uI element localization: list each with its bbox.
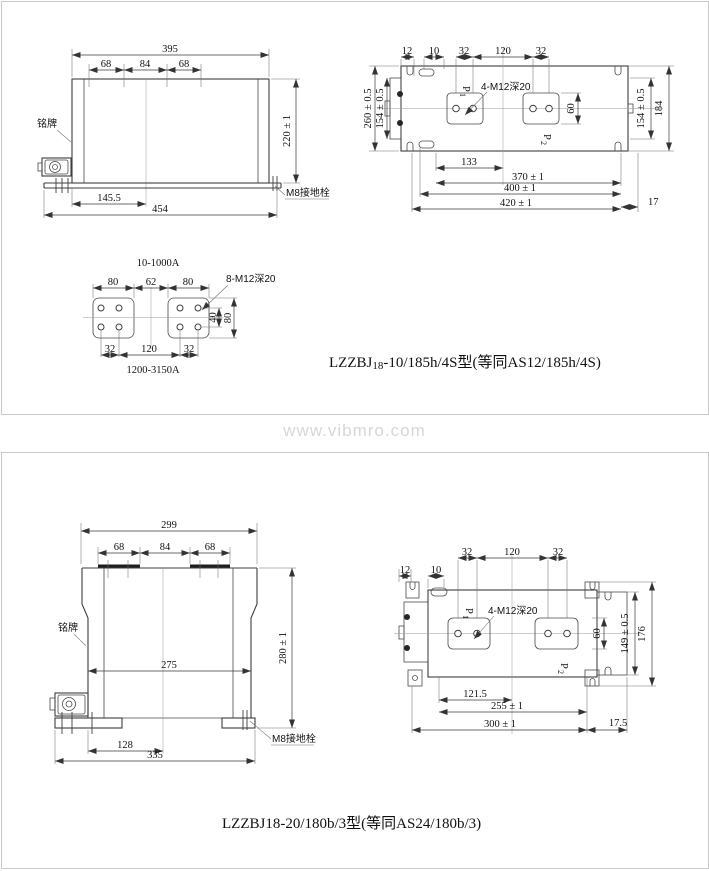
- dim-80r: 80: [223, 313, 234, 324]
- dim-133: 133: [461, 157, 477, 168]
- dim-454: 454: [152, 204, 169, 215]
- dim-60: 60: [592, 628, 603, 639]
- dim-68a: 68: [101, 59, 112, 70]
- dim-149: 149 ± 0.5: [620, 614, 631, 654]
- svg-text:P: P: [541, 134, 552, 140]
- dim-80b: 80: [183, 277, 194, 288]
- title-subscript: 18: [372, 360, 383, 372]
- nameplate-label: 铭牌: [37, 117, 57, 130]
- terminal-detail-drawing: 10-1000A 1200-3150A 8-M12深20 80: [61, 249, 311, 381]
- body-outline: [44, 64, 281, 207]
- title-rest: -20/180b/3型(等同AS24/180b/3): [280, 816, 481, 832]
- drawing-panel-top: 395 68 84 68 220 ± 1 145.5 454 铭牌: [1, 1, 709, 415]
- svg-text:P: P: [463, 608, 474, 614]
- nameplate-label: 铭牌: [58, 621, 78, 634]
- dim-32a: 32: [462, 547, 473, 558]
- p1-label: P 1: [458, 86, 471, 97]
- title-prefix: LZZBJ: [329, 355, 372, 371]
- dim-280: 280 ± 1: [278, 632, 289, 664]
- ground-bolt-label: M8接地栓: [286, 186, 330, 199]
- dim-12: 12: [402, 46, 413, 57]
- holes-label: 4-M12深20: [488, 605, 538, 617]
- dim-10: 10: [431, 565, 442, 576]
- dim-121: 121.5: [463, 689, 487, 700]
- dim-400: 400 ± 1: [504, 183, 536, 194]
- primary-terminal: [38, 158, 71, 176]
- dimensions: 12 10 32 120 32 260 ± 0.5 154 ± 0.5 154 …: [363, 46, 674, 212]
- dim-10: 10: [429, 46, 440, 57]
- holes-label: 8-M12深20: [226, 273, 276, 285]
- current-range-top: 10-1000A: [137, 258, 180, 269]
- p2-label: P 2: [556, 663, 569, 674]
- dim-17: 17: [648, 197, 659, 208]
- pads-outline: [83, 287, 223, 349]
- dim-62: 62: [146, 277, 157, 288]
- dim-300: 300 ± 1: [484, 719, 516, 730]
- dim-260: 260 ± 0.5: [363, 89, 374, 129]
- svg-text:1: 1: [461, 615, 470, 619]
- dim-68b: 68: [179, 59, 190, 70]
- labels: 10-1000A 1200-3150A 8-M12深20: [126, 258, 275, 376]
- dim-395: 395: [162, 44, 178, 55]
- dim-255: 255 ± 1: [491, 701, 523, 712]
- title-prefix: LZZBJ18: [222, 816, 280, 832]
- dim-370: 370 ± 1: [512, 172, 544, 183]
- dim-32b: 32: [536, 46, 547, 57]
- title-rest: -10/185h/4S型(等同AS12/185h/4S): [383, 355, 601, 371]
- p1-label: P 1: [461, 608, 474, 619]
- dimensions: 80 62 80 40 80 32 120 32: [93, 277, 237, 357]
- dim-154r: 154 ± 0.5: [636, 89, 647, 129]
- dim-120: 120: [495, 46, 511, 57]
- dimensions: 32 120 32 12 10 60 149 ± 0.5 176 121.: [399, 547, 656, 733]
- drawing-sheet: 395 68 84 68 220 ± 1 145.5 454 铭牌: [0, 0, 709, 871]
- dim-68a: 68: [114, 542, 125, 553]
- dimensions: 299 68 84 68 280 ± 1 275 128 335: [55, 520, 296, 764]
- dim-17-5: 17.5: [609, 718, 627, 729]
- dim-32a: 32: [459, 46, 470, 57]
- holes-label: 4-M12深20: [481, 81, 531, 93]
- drawing-title-1: LZZBJ18-10/185h/4S型(等同AS12/185h/4S): [329, 351, 601, 372]
- dim-32a: 32: [105, 344, 116, 355]
- dim-68b: 68: [205, 542, 216, 553]
- body-outline: [55, 560, 257, 754]
- dim-275: 275: [161, 660, 177, 671]
- svg-text:2: 2: [539, 141, 548, 145]
- current-range-bottom: 1200-3150A: [126, 365, 179, 376]
- dim-154l: 154 ± 0.5: [375, 89, 386, 129]
- svg-text:P: P: [460, 86, 471, 92]
- drawing-title-2: LZZBJ18-20/180b/3型(等同AS24/180b/3): [222, 812, 481, 833]
- front-view-drawing-1: 395 68 84 68 220 ± 1 145.5 454 铭牌: [29, 37, 331, 222]
- dim-120: 120: [504, 547, 520, 558]
- dim-120: 120: [141, 344, 157, 355]
- dim-128: 128: [117, 740, 133, 751]
- dim-60: 60: [566, 103, 577, 114]
- dim-80a: 80: [108, 277, 119, 288]
- dim-420: 420 ± 1: [500, 198, 532, 209]
- dim-220: 220 ± 1: [282, 115, 293, 147]
- dimensions: 395 68 84 68 220 ± 1 145.5 454: [44, 44, 300, 218]
- drawing-panel-bottom: 299 68 84 68 280 ± 1 275 128 335: [1, 452, 709, 869]
- primary-terminal: [50, 693, 88, 716]
- dim-40: 40: [208, 312, 219, 323]
- watermark-text: www.vibmro.com: [0, 421, 709, 441]
- dim-176: 176: [637, 626, 648, 642]
- dim-32b: 32: [553, 547, 564, 558]
- top-view-drawing-1: 12 10 32 120 32 260 ± 0.5 154 ± 0.5 154 …: [363, 33, 703, 228]
- front-view-drawing-2: 299 68 84 68 280 ± 1 275 128 335: [40, 506, 330, 768]
- svg-text:1: 1: [458, 93, 467, 97]
- svg-text:P: P: [558, 663, 569, 669]
- dim-32b: 32: [184, 344, 195, 355]
- p2-label: P 2: [539, 134, 552, 145]
- dim-184: 184: [654, 100, 665, 117]
- dim-335: 335: [147, 750, 163, 761]
- dim-145: 145.5: [97, 193, 121, 204]
- dim-12: 12: [400, 565, 411, 576]
- dim-84: 84: [160, 542, 171, 553]
- dim-84: 84: [140, 59, 151, 70]
- dim-299: 299: [161, 520, 177, 531]
- top-view-drawing-2: 32 120 32 12 10 60 149 ± 0.5 176 121.: [392, 542, 702, 747]
- labels: P 1 P 2 4-M12深20: [458, 81, 552, 145]
- svg-text:2: 2: [556, 670, 565, 674]
- ground-bolt-label: M8接地栓: [272, 732, 316, 745]
